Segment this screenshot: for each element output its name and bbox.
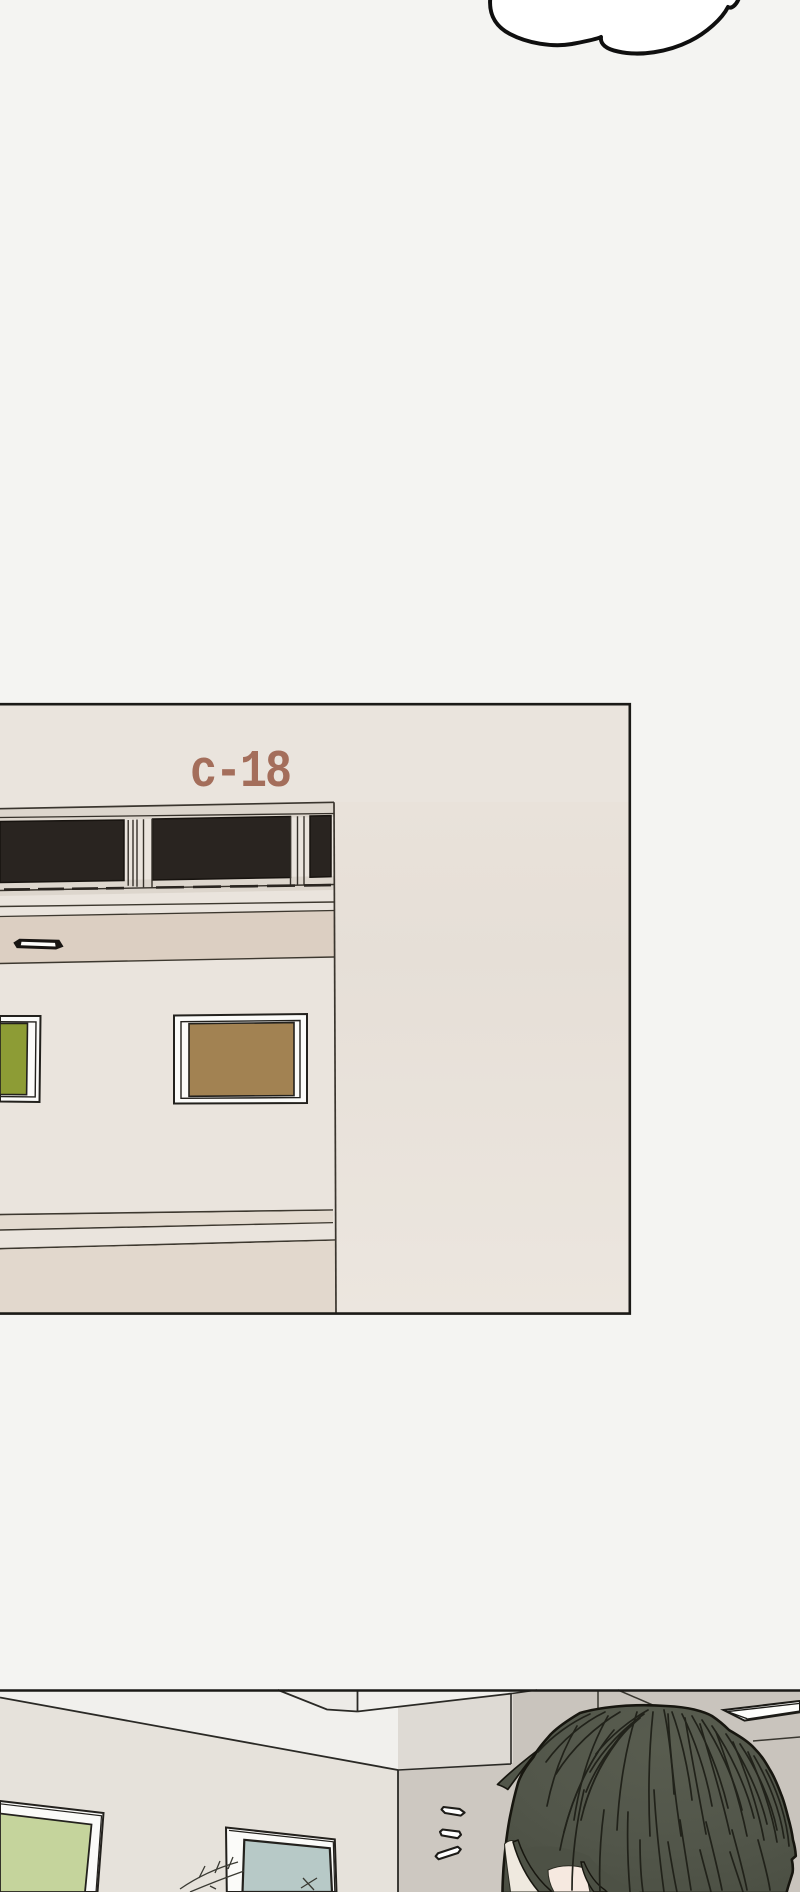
svg-text:c-18: c-18 bbox=[190, 742, 290, 802]
